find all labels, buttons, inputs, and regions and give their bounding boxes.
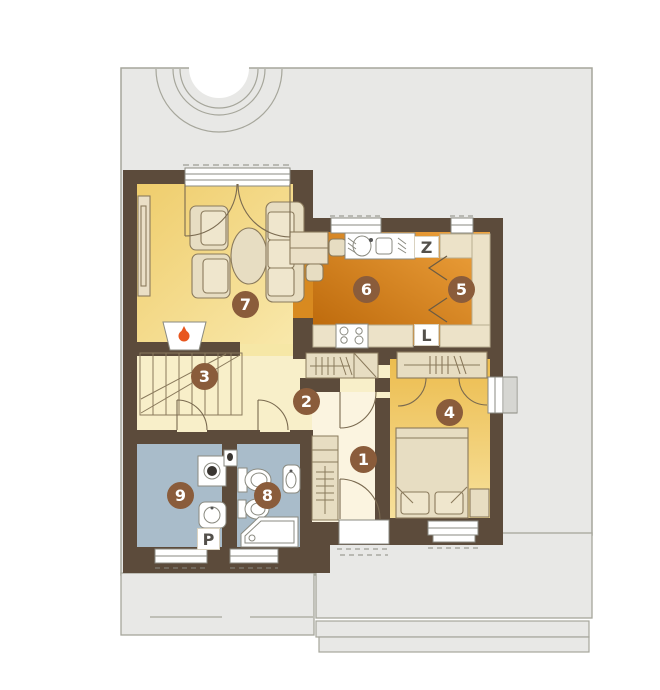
bed — [396, 428, 468, 518]
entry-steps-core — [189, 38, 249, 98]
bar-stool — [329, 239, 346, 256]
armchair — [192, 254, 230, 298]
room-marker-bathroom-8: 8 — [254, 482, 281, 509]
kitchen-sink — [345, 233, 415, 259]
terrace-left — [121, 573, 314, 635]
room-marker-pantry-5: 5 — [448, 276, 475, 303]
entrance-closet — [312, 436, 338, 520]
fireplace-icon — [163, 322, 206, 350]
room-marker-hallway-2: 2 — [293, 388, 320, 415]
appliance-label-p: P — [197, 528, 220, 550]
terrace-door-window — [183, 165, 292, 186]
washing-machine — [198, 456, 226, 486]
pantry-window — [450, 216, 474, 233]
stove — [336, 324, 368, 348]
room-marker-bedroom-4: 4 — [436, 399, 463, 426]
floor-plan-drawing — [0, 0, 660, 690]
hallway-wardrobe — [306, 353, 378, 378]
terrace-step-2 — [319, 637, 589, 652]
coffee-table — [231, 228, 267, 284]
bar-stool — [306, 264, 323, 281]
wall-shelf — [138, 196, 150, 296]
bathroom-sink — [283, 465, 300, 493]
room-marker-kitchen-6: 6 — [353, 276, 380, 303]
terrace-right — [316, 533, 592, 618]
room-marker-entrance-1: 1 — [350, 446, 377, 473]
kitchen-window — [330, 216, 382, 233]
room-marker-living-7: 7 — [232, 291, 259, 318]
terrace-step-1 — [316, 621, 589, 637]
bathroom-sink — [199, 502, 226, 528]
nightstand — [470, 489, 489, 517]
armchair — [190, 206, 228, 250]
floor-plan-page: 1 2 3 4 5 6 7 8 9 Z L P — [0, 0, 660, 690]
appliance-label-z: Z — [414, 236, 439, 258]
appliance-label-l: L — [414, 324, 439, 346]
bedroom-wardrobe — [397, 352, 487, 378]
room-marker-laundry-9: 9 — [167, 482, 194, 509]
wall-cabinet — [224, 450, 237, 466]
room-marker-stairs-3: 3 — [191, 363, 218, 390]
pantry-shelf — [440, 325, 490, 347]
bedroom-east-window — [488, 377, 517, 413]
